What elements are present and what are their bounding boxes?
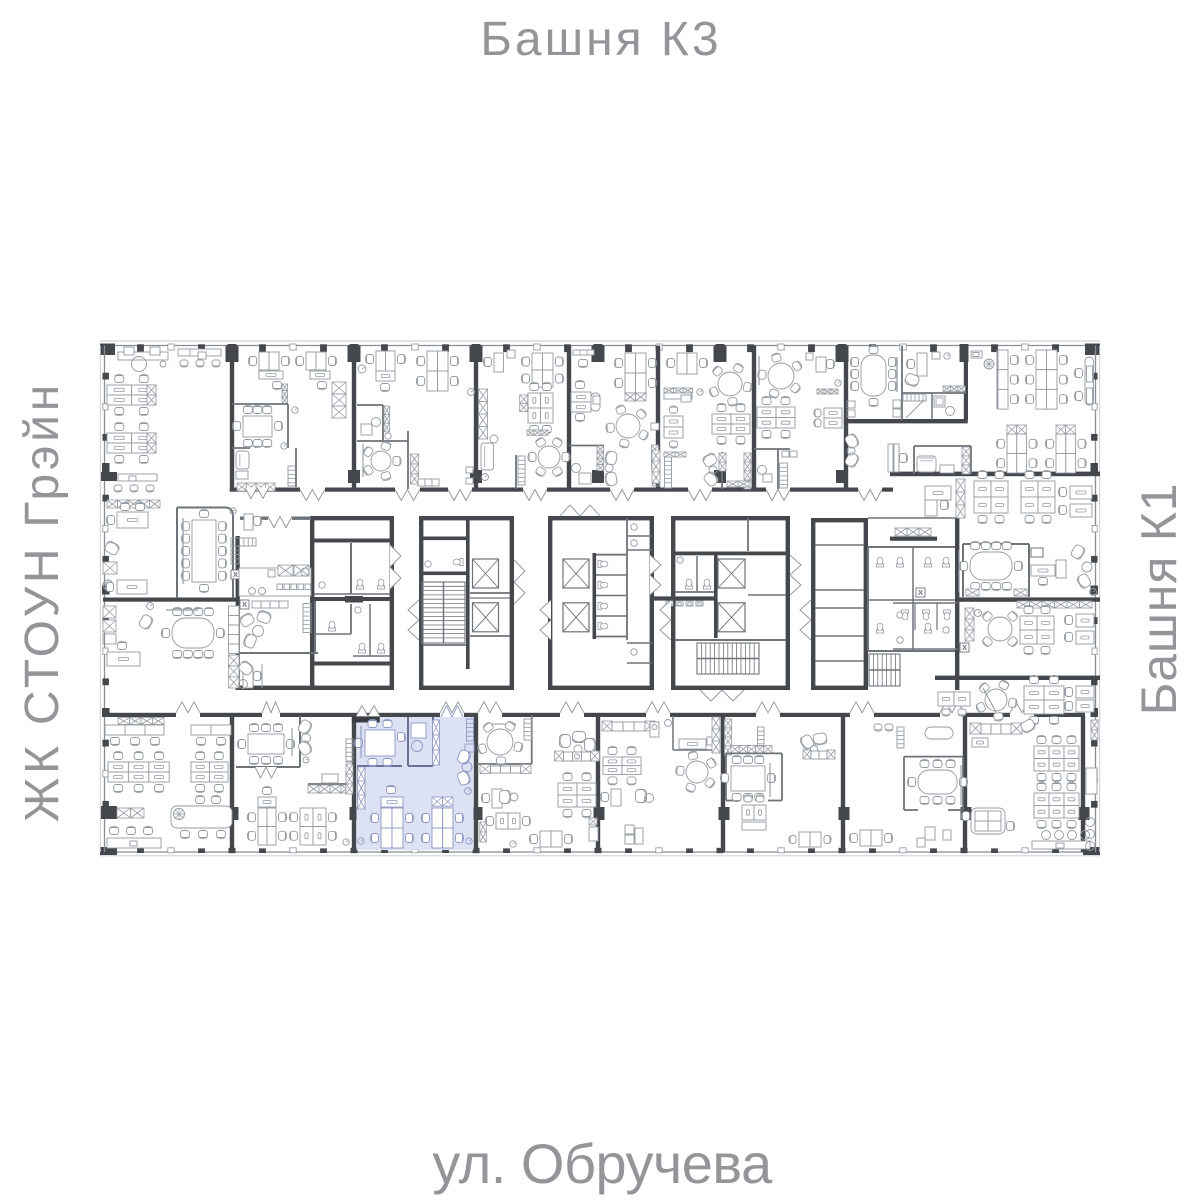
svg-text:X: X (962, 643, 967, 652)
svg-text:X: X (918, 588, 923, 597)
svg-text:ЖК СТОУН Грэйн: ЖК СТОУН Грэйн (16, 381, 69, 822)
svg-text:Башня К3: Башня К3 (480, 13, 721, 66)
svg-text:ул. Обручева: ул. Обручева (432, 1132, 773, 1195)
svg-text:X: X (242, 600, 247, 609)
svg-text:X: X (233, 570, 238, 579)
svg-text:Башня К1: Башня К1 (1131, 483, 1187, 716)
